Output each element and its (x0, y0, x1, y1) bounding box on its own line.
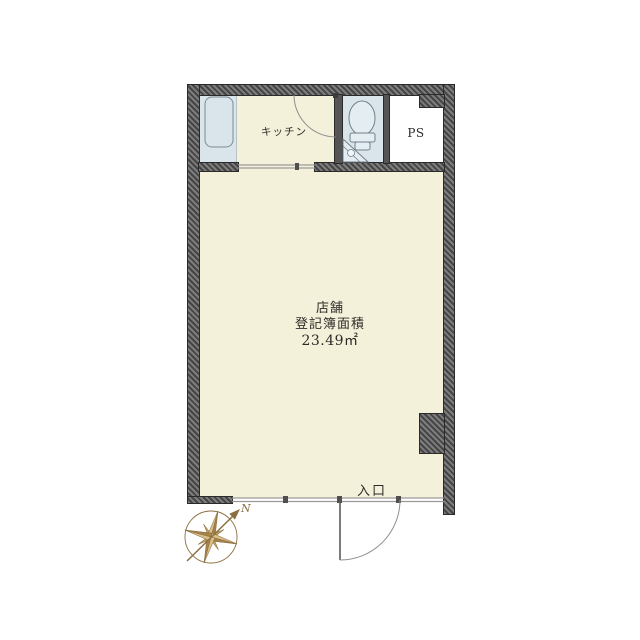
kitchen-label: キッチン (244, 124, 324, 139)
kitchen-opening-lines (238, 163, 315, 170)
floor-plan-canvas: N キッチン PS 店舗 登記簿面積 23.49㎡ 入口 (0, 0, 640, 640)
compass-rose: N (178, 502, 251, 570)
pipe-space-label: PS (396, 126, 436, 140)
entrance-door-icon (340, 500, 400, 560)
main-room-area-value: 23.49㎡ (230, 333, 430, 349)
toilet-icon (349, 101, 375, 150)
entrance-label: 入口 (341, 480, 403, 499)
main-room-name: 店舗 (230, 301, 430, 317)
main-room-area-label: 登記簿面積 (230, 317, 430, 333)
kitchen-sink-icon (205, 97, 233, 147)
storefront-window (232, 496, 444, 503)
north-label: N (240, 502, 251, 515)
main-room-label: 店舗 登記簿面積 23.49㎡ (230, 301, 430, 349)
